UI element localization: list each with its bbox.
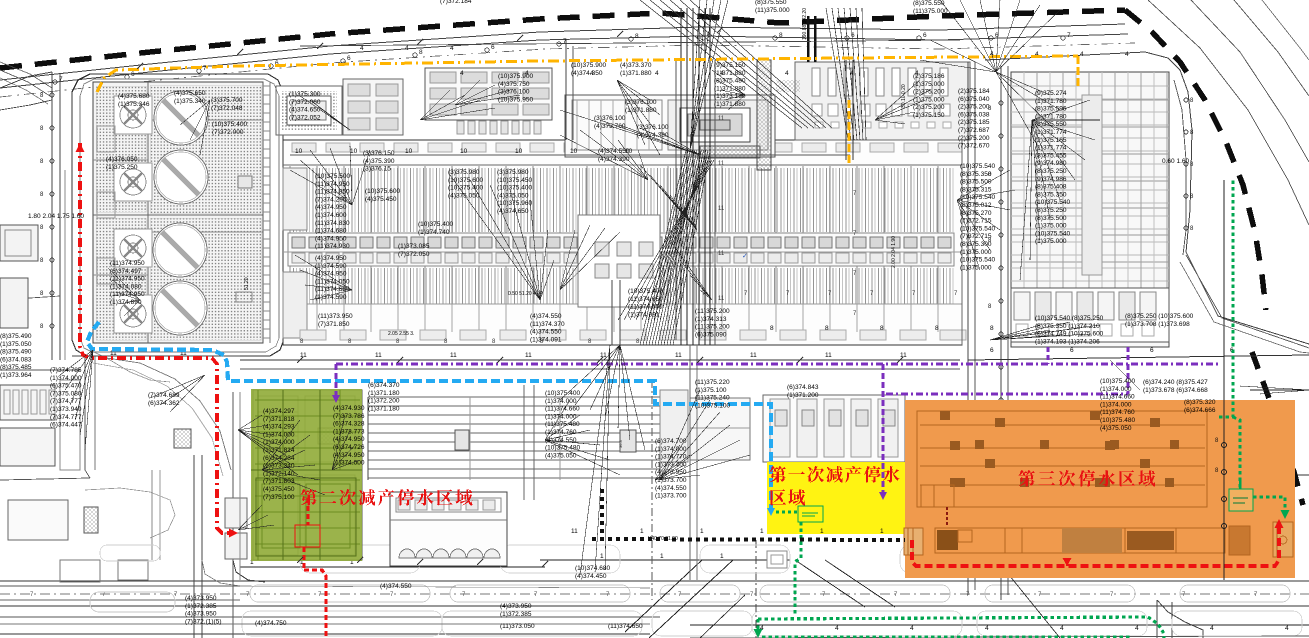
- svg-text:(1)374.590: (1)374.590: [315, 263, 347, 270]
- svg-text:(11)374.950: (11)374.950: [110, 276, 145, 283]
- svg-text:(4)374.950: (4)374.950: [315, 235, 347, 242]
- svg-text:(11)373.950: (11)373.950: [318, 313, 353, 320]
- svg-text:10: 10: [515, 148, 523, 155]
- svg-text:(1)371.774: (1)371.774: [1035, 145, 1067, 152]
- svg-text:8: 8: [935, 325, 939, 332]
- svg-text:(6)374.370: (6)374.370: [368, 382, 400, 389]
- svg-text:(1)371.880: (1)371.880: [714, 85, 746, 92]
- svg-text:4: 4: [835, 625, 839, 632]
- svg-text:(4)376.050: (4)376.050: [106, 156, 138, 163]
- svg-text:(8)375.300: (8)375.300: [960, 241, 992, 248]
- svg-text:4: 4: [910, 625, 914, 632]
- svg-text:(1)374.000: (1)374.000: [50, 375, 82, 382]
- svg-text:(7)372.687: (7)372.687: [958, 127, 990, 134]
- svg-text:(4)373.370: (4)373.370: [620, 62, 652, 69]
- svg-text:7: 7: [1067, 32, 1071, 39]
- svg-text:(7)375.080: (7)375.080: [50, 390, 82, 397]
- svg-text:(11)374.950: (11)374.950: [110, 260, 145, 267]
- svg-text:(4)374.293: (4)374.293: [263, 424, 295, 431]
- svg-text:1.80 2.04 1.75 1.60: 1.80 2.04 1.75 1.60: [28, 213, 84, 220]
- svg-text:(6)374.447: (6)374.447: [50, 422, 82, 429]
- svg-text:(4)374.950: (4)374.950: [315, 255, 347, 262]
- svg-text:(11)375.200: (11)375.200: [695, 324, 730, 331]
- svg-text:11: 11: [450, 352, 457, 359]
- svg-text:(3)375.700: (3)375.700: [211, 97, 243, 104]
- svg-text:4: 4: [405, 45, 409, 52]
- svg-text:10: 10: [405, 148, 413, 155]
- svg-text:(1)373.964: (1)373.964: [0, 372, 32, 379]
- svg-text:4: 4: [1125, 51, 1129, 58]
- svg-text:1: 1: [660, 553, 664, 560]
- svg-text:(7)372.184: (7)372.184: [440, 0, 472, 5]
- svg-text:(6)374.700: (6)374.700: [655, 438, 687, 445]
- svg-text:(7)374.689: (7)374.689: [148, 392, 180, 399]
- svg-text:(1)371.200: (1)371.200: [787, 392, 819, 399]
- svg-text:(11)375.240: (11)375.240: [695, 395, 730, 402]
- svg-text:(4)374.930: (4)374.930: [333, 405, 365, 412]
- svg-text:4: 4: [1080, 51, 1084, 58]
- svg-text:(9)374.986: (9)374.986: [1035, 176, 1067, 183]
- svg-text:10: 10: [460, 148, 468, 155]
- svg-text:(11)374.950: (11)374.950: [110, 291, 145, 298]
- svg-text:(8)375.408: (8)375.408: [1035, 184, 1067, 191]
- svg-text:(10)375.400: (10)375.400: [628, 288, 663, 295]
- svg-text:(10)375.500: (10)375.500: [315, 173, 350, 180]
- svg-text:(8)375.350: (8)375.350: [1035, 191, 1067, 198]
- svg-text:(11)374.830: (11)374.830: [315, 220, 350, 227]
- svg-text:(11)375.220: (11)375.220: [695, 379, 730, 386]
- svg-text:6: 6: [1070, 347, 1074, 354]
- svg-text:0.60 1.60: 0.60 1.60: [1162, 158, 1189, 165]
- svg-text:(4)373.950: (4)373.950: [185, 595, 217, 602]
- svg-text:6: 6: [491, 44, 495, 51]
- svg-text:(11)375.200: (11)375.200: [695, 308, 730, 315]
- svg-text:(10)375.540: (10)375.540: [1035, 230, 1070, 237]
- svg-text:(10)375.540: (10)375.540: [1035, 199, 1070, 206]
- svg-text:(4)375.050: (4)375.050: [448, 192, 480, 199]
- svg-text:(1)374.000: (1)374.000: [1100, 401, 1132, 408]
- svg-text:(6)374.083: (6)374.083: [0, 356, 32, 363]
- svg-text:(7)375.100: (7)375.100: [263, 494, 295, 501]
- svg-text:(7)372.715: (7)372.715: [960, 233, 992, 240]
- svg-text:✓: ✓: [742, 253, 748, 260]
- svg-text:11: 11: [718, 116, 725, 122]
- svg-text:11: 11: [300, 352, 307, 359]
- svg-text:(4)374.750: (4)374.750: [255, 620, 287, 627]
- svg-text:(4)375.050: (4)375.050: [497, 192, 529, 199]
- svg-text:(10)375.400: (10)375.400: [1100, 378, 1135, 385]
- svg-text:(9)375.274: (9)375.274: [1035, 90, 1067, 97]
- svg-text:(10)375.600: (10)375.600: [448, 177, 483, 184]
- svg-text:(3)375.980: (3)375.980: [497, 169, 529, 176]
- svg-text:8: 8: [880, 325, 884, 332]
- svg-text:(1)374.000: (1)374.000: [333, 460, 365, 467]
- svg-text:(11)374.850: (11)374.850: [315, 189, 350, 196]
- svg-text:(8)375.550: (8)375.550: [913, 0, 945, 7]
- svg-text:(1)374.680: (1)374.680: [315, 228, 347, 235]
- svg-text:(1)375.000: (1)375.000: [913, 96, 945, 103]
- svg-text:(1)372.140: (1)372.140: [263, 470, 295, 477]
- svg-text:1: 1: [640, 528, 644, 535]
- svg-text:(8)375.485: (8)375.485: [0, 364, 32, 371]
- svg-text:6: 6: [990, 347, 994, 354]
- svg-text:(1)374.000: (1)374.000: [263, 439, 295, 446]
- svg-text:1: 1: [700, 528, 704, 535]
- svg-text:(1)372.385: (1)372.385: [500, 611, 532, 618]
- svg-text:(7)371.803: (7)371.803: [263, 478, 295, 485]
- svg-text:(11)374.370: (11)374.370: [530, 321, 565, 328]
- svg-text:(11)374.930: (11)374.930: [315, 243, 350, 250]
- svg-text:(1)375.346: (1)375.346: [118, 101, 150, 108]
- svg-text:(4)374.550: (4)374.550: [530, 313, 562, 320]
- svg-text:(4)374.950: (4)374.950: [315, 204, 347, 211]
- svg-text:(1)372.200: (1)372.200: [368, 398, 400, 405]
- svg-text:(7)372.052: (7)372.052: [289, 114, 321, 121]
- svg-text:(4)374.550: (4)374.550: [380, 583, 412, 590]
- svg-text:(6)374.843: (6)374.843: [787, 384, 819, 391]
- svg-text:1: 1: [600, 553, 604, 560]
- svg-text:(6)375.040: (6)375.040: [958, 96, 990, 103]
- svg-text:(10)375.960: (10)375.960: [497, 200, 532, 207]
- svg-text:6: 6: [923, 32, 927, 39]
- svg-text:Y40.70 01.90: Y40.70 01.90: [648, 536, 678, 542]
- svg-text:(1)375.340: (1)375.340: [174, 98, 206, 105]
- svg-text:1: 1: [760, 528, 764, 535]
- svg-text:(8)375.250 (10)375.600: (8)375.250 (10)375.600: [1125, 313, 1194, 320]
- svg-text:(7)372.670: (7)372.670: [958, 143, 990, 150]
- svg-text:(1)374.000: (1)374.000: [263, 431, 295, 438]
- svg-text:(3)376.100: (3)376.100: [594, 115, 626, 122]
- svg-text:(7)372.048: (7)372.048: [211, 105, 243, 112]
- svg-text:1: 1: [880, 528, 884, 535]
- svg-text:(1)375.250: (1)375.250: [106, 164, 138, 171]
- svg-text:(8)375.320: (8)375.320: [1184, 399, 1216, 406]
- svg-text:4: 4: [450, 45, 454, 52]
- svg-text:(4)375.050: (4)375.050: [545, 452, 577, 459]
- svg-text:(1)371.780: (1)371.780: [1035, 113, 1067, 120]
- svg-text:8: 8: [419, 49, 423, 56]
- svg-text:4: 4: [785, 70, 789, 77]
- svg-text:(4)375.390: (4)375.390: [363, 158, 395, 165]
- svg-text:(10)375.540 (8)375.250: (10)375.540 (8)375.250: [1035, 315, 1104, 322]
- svg-text:(1)375.300: (1)375.300: [289, 91, 321, 98]
- svg-text:(10)375.400: (10)375.400: [497, 185, 532, 192]
- svg-text:(2)375.200: (2)375.200: [913, 104, 945, 111]
- svg-text:(10)375.540: (10)375.540: [960, 163, 995, 170]
- svg-text:11: 11: [525, 352, 532, 359]
- svg-text:(1)374.091: (1)374.091: [530, 336, 562, 343]
- svg-text:(4)374.350: (4)374.350: [571, 70, 603, 77]
- svg-text:(4)373.950: (4)373.950: [655, 469, 687, 476]
- svg-text:(11)375.000: (11)375.000: [755, 7, 790, 14]
- svg-text:(10)375.900: (10)375.900: [498, 73, 533, 80]
- svg-text:10: 10: [570, 148, 578, 155]
- svg-text:(4)374.297: (4)374.297: [263, 408, 295, 415]
- svg-text:10: 10: [350, 148, 358, 155]
- svg-text:(4)375.650: (4)375.650: [174, 90, 206, 97]
- svg-text:1: 1: [820, 528, 824, 535]
- svg-text:(7)374.777: (7)374.777: [50, 414, 82, 421]
- svg-text:4: 4: [1060, 625, 1064, 632]
- svg-text:(1)371.880: (1)371.880: [620, 70, 652, 77]
- svg-text:(4)374.450: (4)374.450: [575, 573, 607, 580]
- svg-text:1: 1: [720, 553, 724, 560]
- svg-text:(6)374.362: (6)374.362: [148, 400, 180, 407]
- svg-text:(1)374.080: (1)374.080: [110, 283, 142, 290]
- svg-text:(1)374.000: (1)374.000: [1100, 386, 1132, 393]
- svg-text:4: 4: [1135, 625, 1139, 632]
- svg-text:8: 8: [990, 325, 994, 332]
- svg-text:2.05 2.55 3.: 2.05 2.55 3.: [388, 331, 414, 337]
- svg-text:(3)375.980: (3)375.980: [448, 169, 480, 176]
- svg-text:4: 4: [655, 70, 659, 77]
- svg-text:(1)371.180: (1)371.180: [368, 390, 400, 397]
- svg-text:(8)375.490: (8)375.490: [0, 333, 32, 340]
- svg-text:(11)374.650: (11)374.650: [628, 296, 663, 303]
- svg-text:(4)375.050: (4)375.050: [1100, 425, 1132, 432]
- svg-text:6: 6: [347, 55, 351, 62]
- svg-text:(11)374.660: (11)374.660: [1100, 394, 1135, 401]
- svg-text:8: 8: [825, 325, 829, 332]
- svg-text:(1)374.740: (1)374.740: [418, 229, 450, 236]
- svg-text:51.20: 51.20: [244, 277, 250, 290]
- svg-text:(6)375.090: (6)375.090: [695, 331, 727, 338]
- svg-text:(1)373.700: (1)373.700: [655, 493, 687, 500]
- svg-text:(8)375.500: (8)375.500: [960, 179, 992, 186]
- svg-text:(1)373.678 (6)374.668: (1)373.678 (6)374.668: [1143, 387, 1208, 394]
- svg-text:(1)371.774: (1)371.774: [1035, 129, 1067, 136]
- svg-text:(4)374.650: (4)374.650: [289, 107, 321, 114]
- svg-text:(6)375.038: (6)375.038: [958, 111, 990, 118]
- svg-text:(1)371.180: (1)371.180: [368, 405, 400, 412]
- svg-text:(11)375.000: (11)375.000: [913, 8, 948, 15]
- svg-text:(4)374.550: (4)374.550: [655, 485, 687, 492]
- svg-text:(4)374.550: (4)374.550: [530, 329, 562, 336]
- svg-text:4: 4: [460, 70, 464, 77]
- svg-text:(2)375.200: (2)375.200: [958, 135, 990, 142]
- svg-text:(4)375.680: (4)375.680: [118, 93, 150, 100]
- svg-text:(2)375.200: (2)375.200: [913, 89, 945, 96]
- svg-text:(7)371.850: (7)371.850: [318, 321, 350, 328]
- svg-text:(1)373.708 (1)373.698: (1)373.708 (1)373.698: [1125, 321, 1190, 328]
- svg-text:(11)373.050: (11)373.050: [500, 623, 535, 630]
- svg-text:4: 4: [360, 45, 364, 52]
- svg-text:(3)376.15: (3)376.15: [363, 166, 391, 173]
- svg-text:(4)375.450: (4)375.450: [263, 486, 295, 493]
- svg-text:11: 11: [750, 352, 757, 359]
- svg-text:(7)371.818: (7)371.818: [263, 416, 295, 423]
- svg-text:36.3: 36.3: [618, 439, 623, 448]
- svg-text:(1)371.780: (1)371.780: [1035, 98, 1067, 105]
- svg-text:(10)375.900: (10)375.900: [571, 62, 606, 69]
- svg-text:(1)371.880: (1)371.880: [714, 70, 746, 77]
- svg-text:(1)375.000: (1)375.000: [960, 264, 992, 271]
- svg-text:(10)375.450: (10)375.450: [497, 177, 532, 184]
- svg-text:(11)374.650: (11)374.650: [608, 623, 643, 630]
- svg-text:(1)375.000: (1)375.000: [960, 249, 992, 256]
- svg-text:(10)375.100: (10)375.100: [695, 402, 730, 409]
- svg-text:(4)374.950: (4)374.950: [315, 271, 347, 278]
- svg-text:(8)375.455: (8)375.455: [1035, 152, 1067, 159]
- svg-text:(1)374.091: (1)374.091: [628, 311, 660, 318]
- svg-text:10: 10: [295, 148, 303, 155]
- svg-text:(1)375.000: (1)375.000: [1035, 223, 1067, 230]
- svg-text:(1)375.050: (1)375.050: [0, 341, 32, 348]
- svg-text:4: 4: [985, 625, 989, 632]
- svg-text:(2)375.200: (2)375.200: [958, 104, 990, 111]
- svg-text:(10)375.400: (10)375.400: [545, 390, 580, 397]
- svg-text:(1)372.385: (1)372.385: [185, 603, 217, 610]
- svg-text:(11)375.480: (11)375.480: [545, 421, 580, 428]
- svg-text:8: 8: [779, 32, 783, 39]
- svg-text:(8)375.250: (8)375.250: [1035, 207, 1067, 214]
- svg-text:(10)375.600: (10)375.600: [365, 188, 400, 195]
- svg-text:11: 11: [718, 296, 725, 302]
- svg-text:(11)374.050: (11)374.050: [315, 278, 350, 285]
- svg-text:11: 11: [675, 352, 682, 359]
- svg-text:(4)373.950: (4)373.950: [500, 603, 532, 610]
- svg-text:(10)375.400: (10)375.400: [448, 185, 483, 192]
- svg-text:(6)374.666: (6)374.666: [1184, 407, 1216, 414]
- svg-text:11: 11: [571, 528, 578, 535]
- svg-text:(8)375.350: (8)375.350: [960, 171, 992, 178]
- svg-text:(9)375.150: (9)375.150: [714, 62, 746, 69]
- svg-text:11: 11: [718, 161, 725, 167]
- svg-text:(1)374.600: (1)374.600: [315, 212, 347, 219]
- svg-text:(1)374.313: (1)374.313: [695, 316, 727, 323]
- svg-text:(7)372.050: (7)372.050: [398, 251, 430, 258]
- svg-text:(4)375.750: (4)375.750: [498, 81, 530, 88]
- svg-text:(10)375.400: (10)375.400: [212, 121, 247, 128]
- svg-text:(1)374.000: (1)374.000: [655, 446, 687, 453]
- svg-text:(7)372.(1)(5): (7)372.(1)(5): [185, 618, 221, 625]
- svg-text:11: 11: [375, 352, 382, 359]
- svg-text:(8)375.500: (8)375.500: [1035, 215, 1067, 222]
- svg-text:4: 4: [1210, 625, 1214, 632]
- svg-text:(1)374.193 (1)374.206: (1)374.193 (1)374.206: [1035, 338, 1100, 345]
- svg-text:(1)373.085: (1)373.085: [398, 243, 430, 250]
- svg-text:11: 11: [825, 352, 832, 359]
- svg-text:(7)374.777: (7)374.777: [50, 398, 82, 405]
- svg-text:(1)371.880: (1)371.880: [714, 101, 746, 108]
- svg-text:(10)375.480: (10)375.480: [1100, 417, 1135, 424]
- svg-text:(7)372.000: (7)372.000: [212, 129, 244, 136]
- svg-text:190.88 342.20: 190.88 342.20: [802, 8, 808, 40]
- svg-text:11: 11: [718, 206, 725, 212]
- svg-text:8: 8: [635, 33, 639, 40]
- svg-text:(7)373.786: (7)373.786: [333, 413, 365, 420]
- svg-text:(8)375.490: (8)375.490: [0, 349, 32, 356]
- svg-text:(2)375.186: (2)375.186: [913, 73, 945, 80]
- svg-text:(6)374.497: (6)374.497: [110, 268, 142, 275]
- svg-text:4: 4: [1285, 625, 1289, 632]
- svg-text:(11)374.550: (11)374.550: [628, 304, 663, 311]
- svg-text:11: 11: [718, 251, 725, 257]
- svg-text:(8)375.550: (8)375.550: [755, 0, 787, 6]
- svg-text:(10)375.400: (10)375.400: [418, 221, 453, 228]
- svg-text:(2)375.185: (2)375.185: [958, 119, 990, 126]
- svg-text:(6)374.328: (6)374.328: [333, 421, 365, 428]
- svg-text:(4)373.950: (4)373.950: [185, 611, 217, 618]
- svg-text:(4)375.450: (4)375.450: [365, 196, 397, 203]
- svg-text:(1)375.150: (1)375.150: [913, 112, 945, 119]
- svg-text:(4)374.950: (4)374.950: [333, 436, 365, 443]
- svg-text:11: 11: [900, 352, 907, 359]
- svg-text:(7)374.290: (7)374.290: [315, 196, 347, 203]
- svg-text:6: 6: [1150, 347, 1154, 354]
- svg-text:(11)374.760: (11)374.760: [1100, 409, 1135, 416]
- svg-text:(2)375.184: (2)375.184: [958, 88, 990, 95]
- svg-text:(1)374.890: (1)374.890: [110, 299, 142, 306]
- svg-text:(8)375.315: (8)375.315: [960, 186, 992, 193]
- svg-text:(8)375.596: (8)375.596: [1035, 106, 1067, 113]
- svg-text:(6)374.240 (8)375.427: (6)374.240 (8)375.427: [1143, 379, 1208, 386]
- svg-text:2.00 2.04 1.90: 2.00 2.04 1.90: [891, 236, 897, 268]
- svg-text:8: 8: [770, 325, 774, 332]
- svg-text:4: 4: [850, 70, 854, 77]
